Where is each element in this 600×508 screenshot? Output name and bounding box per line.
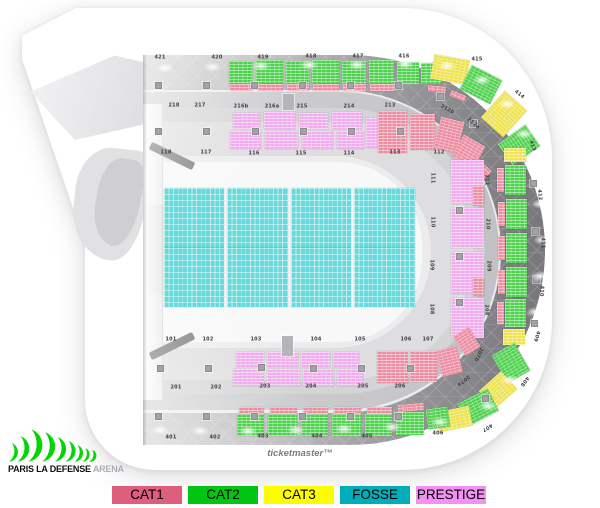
structural-pillar — [397, 128, 404, 135]
section-label: 118 — [160, 151, 171, 156]
structural-pillar — [155, 128, 162, 135]
section-label: 110 — [430, 216, 435, 227]
section-label: 401 — [165, 436, 176, 441]
structural-pillar — [251, 413, 258, 420]
seat-section-block-cat2[interactable] — [286, 61, 309, 84]
section-label: 216b — [234, 105, 249, 110]
structural-pillar — [395, 82, 402, 89]
section-label: 211 — [484, 174, 489, 185]
section-label: 111 — [430, 172, 435, 183]
section-label: 204 — [305, 385, 316, 390]
seat-section-block-cat1[interactable] — [370, 84, 394, 91]
floor-section-fosse[interactable] — [291, 188, 351, 307]
section-label: 101 — [165, 338, 176, 343]
section-label: 217 — [194, 104, 205, 109]
seat-section-block-cat1[interactable] — [367, 407, 392, 414]
section-label: 109 — [429, 259, 434, 270]
section-label: 419 — [257, 56, 268, 61]
seat-section-block-cat2[interactable] — [505, 165, 526, 195]
section-label: 420 — [211, 56, 222, 61]
structural-pillar — [203, 128, 210, 135]
structural-pillar — [456, 299, 463, 306]
section-label: 205 — [357, 385, 368, 390]
structural-pillar — [348, 128, 355, 135]
seat-section-block-prestige[interactable] — [267, 369, 300, 386]
legend-item-cat2: CAT2 — [188, 486, 258, 504]
section-label: 108 — [429, 303, 434, 314]
aisle-tab-top — [283, 94, 294, 110]
section-label: 209 — [486, 260, 491, 271]
seat-section-block-prestige[interactable] — [333, 352, 359, 367]
legend-item-cat1: CAT1 — [112, 486, 182, 504]
structural-pillar — [533, 276, 540, 283]
section-label: 412 — [536, 189, 542, 200]
section-label: 208 — [484, 304, 489, 315]
section-label: 114 — [343, 152, 354, 157]
structural-pillar — [299, 413, 306, 420]
seat-section-block-prestige[interactable] — [264, 112, 295, 129]
section-label: 103 — [250, 338, 261, 343]
section-label: 410 — [538, 285, 544, 296]
structural-pillar — [482, 395, 489, 402]
structural-pillar — [299, 82, 306, 89]
structural-pillar — [300, 128, 307, 135]
category-legend: CAT1CAT2CAT3FOSSEPRESTIGE — [112, 486, 486, 504]
structural-pillar — [358, 365, 365, 372]
section-label: 201 — [170, 386, 181, 391]
structural-pillar — [347, 82, 354, 89]
section-label: 104 — [310, 338, 321, 343]
seat-section-block-cat2[interactable] — [256, 60, 283, 84]
section-label: 206 — [394, 385, 405, 390]
section-label: 113 — [389, 151, 400, 156]
structural-pillar — [456, 253, 463, 260]
legend-item-cat3: CAT3 — [264, 486, 334, 504]
section-label: 116 — [248, 152, 259, 157]
seat-section-block-cat2[interactable] — [268, 414, 297, 436]
section-label: 105 — [354, 338, 365, 343]
seat-section-block-prestige[interactable] — [265, 131, 298, 149]
section-label: 107 — [422, 338, 433, 343]
seat-section-block-prestige[interactable] — [233, 113, 260, 129]
legend-item-fosse: FOSSE — [340, 486, 410, 504]
structural-pillar — [155, 413, 162, 420]
section-label: 402 — [209, 436, 220, 441]
seat-section-block-cat1[interactable] — [497, 302, 504, 324]
structural-pillar — [407, 365, 414, 372]
seat-section-block-cat1[interactable] — [257, 84, 283, 91]
section-label: 407 — [481, 422, 493, 432]
section-label: 202 — [210, 386, 221, 391]
seat-section-block-cat1[interactable] — [498, 236, 505, 260]
structural-pillar — [155, 82, 162, 89]
seat-section-block-cat1[interactable] — [498, 270, 505, 294]
seat-section-block-cat2[interactable] — [369, 60, 394, 84]
seat-section-block-cat1[interactable] — [497, 168, 504, 192]
structural-pillar — [203, 413, 210, 420]
seat-section-block-cat1[interactable] — [270, 407, 297, 414]
seat-section-block-cat2[interactable] — [342, 61, 366, 84]
seat-map-page: 4214204194184174164154144134124114104094… — [0, 0, 600, 508]
seat-section-block-cat2[interactable] — [506, 267, 527, 297]
section-label: 411 — [540, 237, 545, 248]
seat-section-block-cat3[interactable] — [504, 148, 526, 162]
floor-section-fosse[interactable] — [164, 188, 224, 307]
section-label: 415 — [471, 58, 482, 63]
structural-pillar — [347, 413, 354, 420]
seat-section-block-cat1[interactable] — [377, 351, 408, 383]
structural-pillar — [205, 365, 212, 372]
seat-section-block-cat1[interactable] — [313, 84, 339, 91]
section-label: 215 — [296, 105, 307, 110]
structural-pillar — [251, 82, 258, 89]
section-label: 214 — [343, 105, 354, 110]
section-label: 218 — [168, 104, 179, 109]
seat-section-block-cat2[interactable] — [426, 407, 451, 430]
section-label: 115 — [295, 152, 306, 157]
structural-pillar — [456, 207, 463, 214]
seat-section-block-cat1[interactable] — [303, 407, 328, 414]
section-label: 405 — [361, 435, 372, 440]
floor-section-fosse[interactable] — [227, 188, 288, 307]
section-label: 417 — [352, 55, 363, 60]
structural-pillar — [258, 364, 265, 371]
section-label: 203 — [259, 385, 270, 390]
structural-pillar — [530, 180, 537, 187]
section-label: 409 — [532, 330, 540, 342]
seat-section-block-cat2[interactable] — [506, 233, 527, 263]
structural-pillar — [532, 228, 539, 235]
paris-la-defense-arena-logo: PARIS LA DEFENSEARENA — [8, 428, 118, 474]
seat-section-block-cat2[interactable] — [506, 199, 527, 229]
brand-name-light: ARENA — [93, 464, 124, 474]
section-label: 213 — [384, 104, 395, 109]
aisle-tab-bottom — [282, 336, 293, 356]
section-label: 404 — [311, 435, 322, 440]
seat-section-block-prestige[interactable] — [366, 118, 378, 148]
section-label: 117 — [200, 151, 211, 156]
structural-pillar — [252, 128, 259, 135]
section-label: 112 — [433, 151, 444, 156]
seat-section-block-cat2[interactable] — [312, 60, 339, 84]
section-label: 102 — [202, 338, 213, 343]
structural-pillar — [437, 93, 444, 100]
seat-section-block-cat1[interactable] — [473, 186, 484, 206]
seat-section-block-cat1[interactable] — [410, 114, 435, 150]
section-label: 416 — [398, 55, 409, 60]
seat-section-block-cat1[interactable] — [498, 202, 505, 226]
floor-section-fosse[interactable] — [354, 188, 415, 307]
structural-pillar — [203, 82, 210, 89]
seat-section-block-prestige[interactable] — [332, 112, 362, 129]
section-label: 408 — [519, 375, 530, 387]
seat-section-block-prestige[interactable] — [451, 208, 484, 248]
structural-pillar — [531, 320, 538, 327]
seat-section-block-cat1[interactable] — [410, 351, 437, 382]
structural-pillar — [310, 365, 317, 372]
section-label: 210 — [485, 218, 490, 229]
section-label: 106 — [400, 338, 411, 343]
seat-section-block-cat1[interactable] — [230, 84, 253, 91]
seat-section-block-cat2[interactable] — [505, 299, 526, 327]
brand-name: PARIS LA DEFENSEARENA — [8, 465, 118, 474]
section-label: 421 — [154, 56, 165, 61]
structural-pillar — [157, 365, 164, 372]
seat-section-block-cat2[interactable] — [397, 62, 419, 84]
seat-section-block-prestige[interactable] — [299, 113, 328, 129]
structural-pillar — [395, 413, 402, 420]
section-label: 406 — [432, 432, 443, 437]
section-label: 216a — [265, 105, 280, 110]
ticketmaster-watermark: ticketmaster™ — [243, 448, 357, 459]
legend-item-prestige: PRESTIGE — [416, 486, 486, 504]
seat-section-block-cat2[interactable] — [229, 61, 253, 84]
west-wall-shadow — [143, 55, 147, 445]
logo-crescents-icon — [8, 428, 102, 464]
section-label: 418 — [305, 55, 316, 60]
brand-name-bold: PARIS LA DEFENSE — [8, 464, 91, 474]
section-label: 403 — [257, 435, 268, 440]
seat-section-block-cat1[interactable] — [473, 278, 484, 296]
